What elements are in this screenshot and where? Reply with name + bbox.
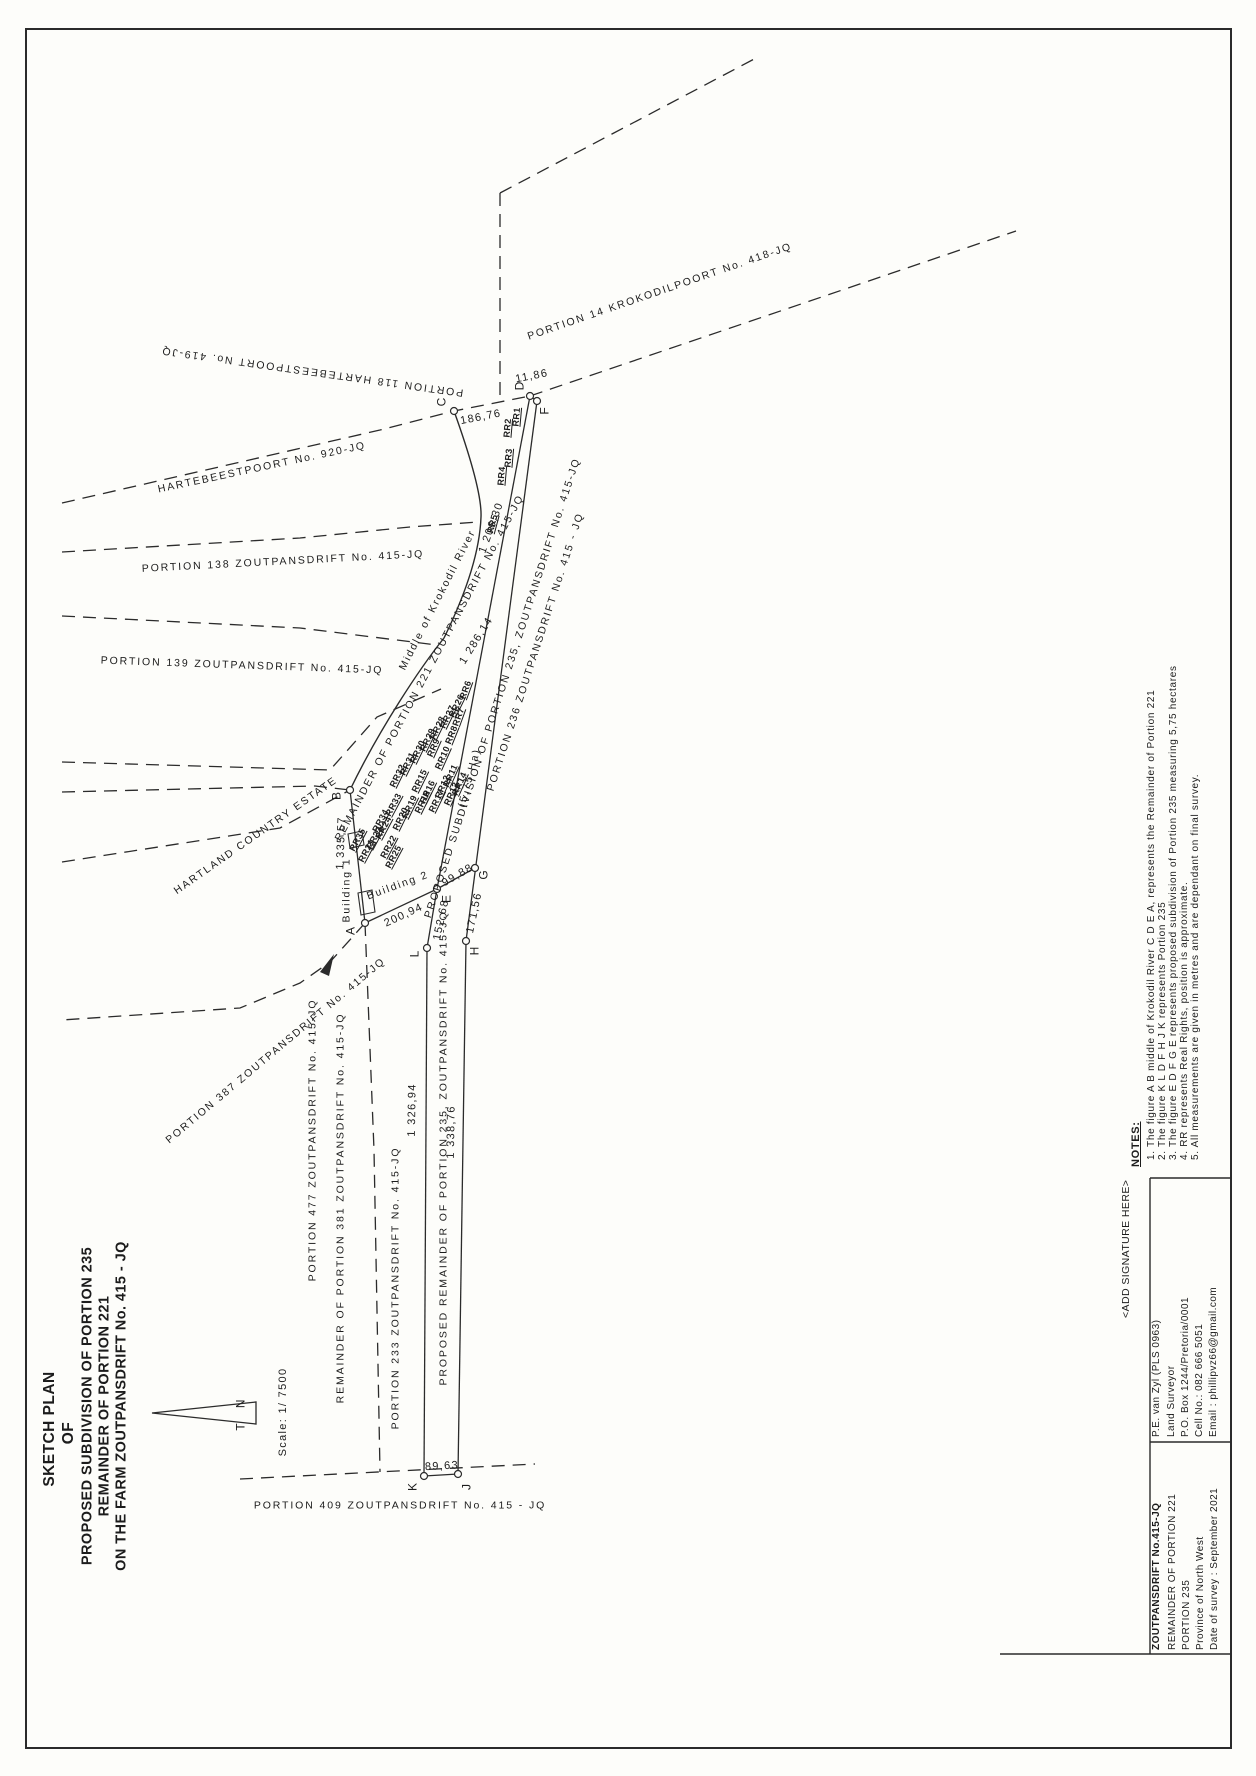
rr-label-3: RR3 bbox=[503, 448, 514, 468]
note-item-3: 3. The figure E D F G E represents propo… bbox=[1169, 665, 1180, 1160]
survey-point-letter-j: J bbox=[461, 1484, 474, 1490]
surveyor-title: Land Surveyor bbox=[1167, 1365, 1178, 1437]
note-item-4: 4. RR represents Real Rights, position i… bbox=[1180, 882, 1191, 1160]
true-north-label: T N bbox=[235, 1393, 248, 1430]
dimension-label: 89,63 bbox=[425, 1460, 460, 1473]
sketch-plan-page: SKETCH PLAN OF PROPOSED SUBDIVISION OF P… bbox=[0, 0, 1256, 1776]
project-survey-date: Date of survey : September 2021 bbox=[1210, 1488, 1221, 1650]
note-item-1: 1. The figure A B middle of Krokodil Riv… bbox=[1147, 690, 1158, 1160]
survey-point-letter-h: H bbox=[469, 947, 482, 956]
note-item-5: 5. All measurements are given in metres … bbox=[1191, 774, 1202, 1160]
parcel-label-portion-233: PORTION 233 ZOUTPANSDRIFT No. 415-JQ bbox=[390, 1147, 401, 1430]
project-farm-name: ZOUTPANSDRIFT No.415-JQ bbox=[1152, 1503, 1163, 1650]
leader-arrowhead bbox=[320, 954, 334, 976]
parcel-label-portion-409: PORTION 409 ZOUTPANSDRIFT No. 415 - JQ bbox=[254, 1500, 546, 1511]
dashed-boundary-lines bbox=[62, 57, 1016, 1479]
notes-heading: NOTES: bbox=[1131, 1121, 1143, 1167]
plan-title-line-1: SKETCH PLAN bbox=[42, 1371, 58, 1486]
parcel-label-portion-477: PORTION 477 ZOUTPANSDRIFT No. 415-JQ bbox=[307, 999, 318, 1282]
note-item-2: 2. The figure K L D F H J K represents P… bbox=[1158, 902, 1169, 1160]
plan-title-line-3: PROPOSED SUBDIVISION OF PORTION 235 bbox=[80, 1247, 95, 1565]
signature-placeholder: <ADD SIGNATURE HERE> bbox=[1121, 1180, 1132, 1318]
dimension-label: 1 326,94 bbox=[407, 1083, 419, 1137]
scale-label: Scale: 1/ 7500 bbox=[278, 1368, 290, 1457]
survey-point-letter-b: B bbox=[331, 792, 344, 800]
plan-title-line-4: REMAINDER OF PORTION 221 bbox=[97, 1296, 112, 1517]
survey-point-letter-c: C bbox=[436, 398, 449, 407]
rr-label-4: RR4 bbox=[496, 466, 507, 486]
rr-label-1: RR1 bbox=[511, 407, 522, 427]
dimension-label: 1 338,76 bbox=[446, 1105, 458, 1159]
surveyor-cell-number: Cell No.: 082 666 5051 bbox=[1195, 1324, 1206, 1437]
dimension-label: 1 335,57 bbox=[335, 816, 348, 870]
plan-title-line-5: ON THE FARM ZOUTPANSDRIFT No. 415 - JQ bbox=[114, 1241, 129, 1571]
survey-point-letter-a: A bbox=[345, 927, 358, 935]
surveyor-email: Email : phillipvz66@gmail.com bbox=[1209, 1287, 1220, 1437]
survey-point-letter-f: F bbox=[539, 407, 552, 414]
survey-point-letter-k: K bbox=[407, 1483, 420, 1491]
survey-point-letter-g: G bbox=[478, 870, 491, 879]
surveyor-address: P.O. Box 1244/Pretoria/0001 bbox=[1181, 1297, 1192, 1437]
surveyor-name: P.E. van Zyl (PLS 0963) bbox=[1152, 1320, 1163, 1437]
rr-label-2: RR2 bbox=[502, 418, 513, 438]
project-portion-235: PORTION 235 bbox=[1182, 1580, 1193, 1650]
plan-title-line-2: OF bbox=[61, 1422, 77, 1444]
project-portion-221: REMAINDER OF PORTION 221 bbox=[1168, 1494, 1179, 1650]
project-province: Province of North West bbox=[1196, 1536, 1207, 1650]
parcel-label-remainder-portion-381: REMAINDER OF PORTION 381 ZOUTPANSDRIFT N… bbox=[335, 1013, 346, 1404]
survey-point-letter-l: L bbox=[409, 951, 422, 958]
